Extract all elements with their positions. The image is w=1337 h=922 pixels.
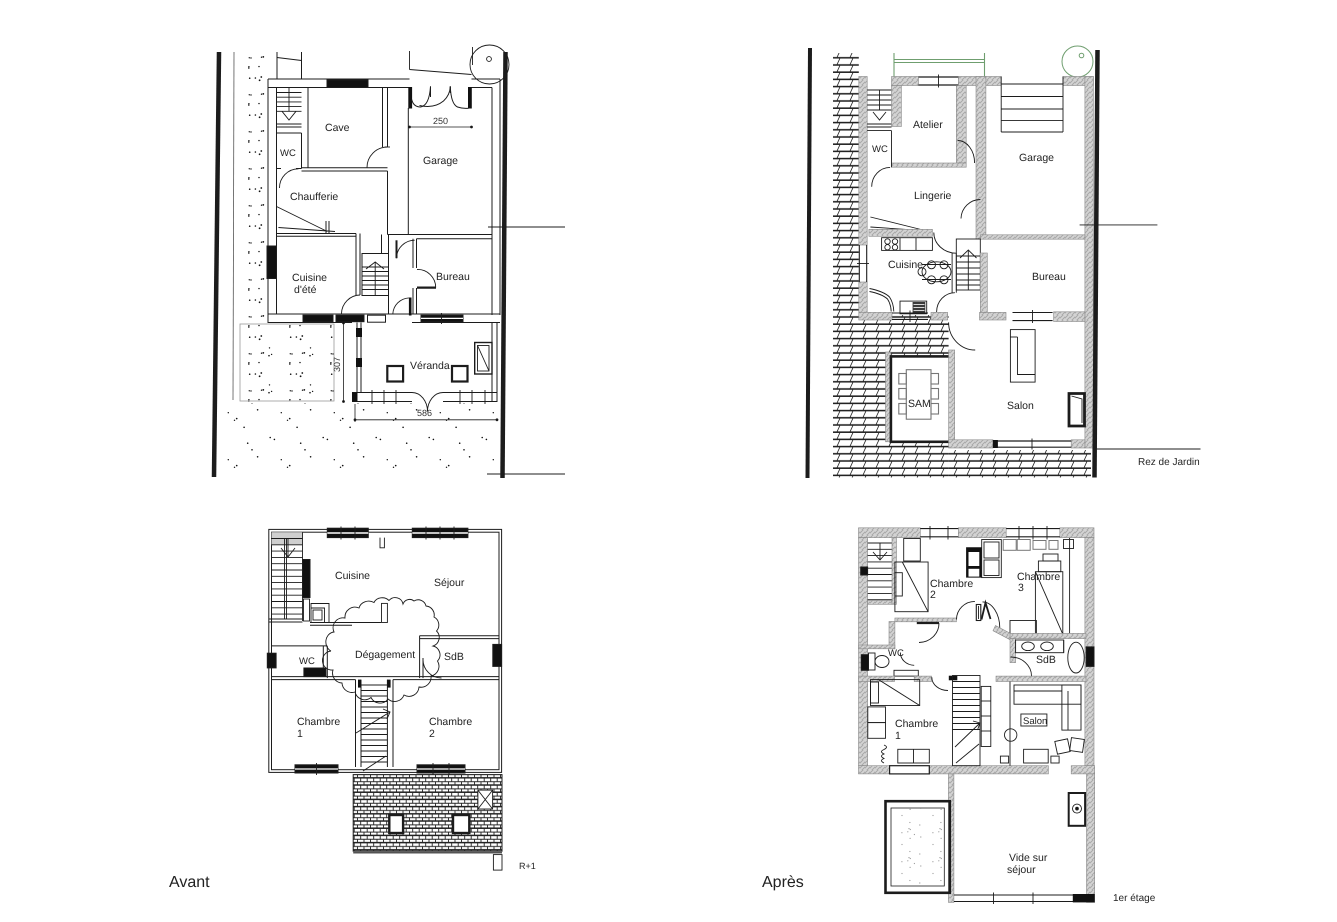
svg-text:d'été: d'été	[294, 284, 317, 296]
svg-text:2: 2	[930, 589, 936, 601]
svg-text:Garage: Garage	[423, 155, 458, 167]
svg-text:Atelier: Atelier	[913, 119, 943, 131]
svg-text:Cave: Cave	[325, 122, 350, 134]
svg-text:307: 307	[332, 357, 342, 372]
svg-text:1: 1	[895, 730, 901, 742]
svg-text:250: 250	[433, 116, 448, 126]
svg-text:1: 1	[297, 728, 303, 740]
svg-text:3: 3	[1018, 582, 1024, 594]
svg-text:WC: WC	[888, 648, 904, 659]
svg-text:Bureau: Bureau	[436, 271, 470, 283]
svg-text:SdB: SdB	[444, 651, 464, 663]
svg-text:WC: WC	[299, 656, 315, 667]
svg-text:WC: WC	[280, 148, 296, 159]
svg-text:WC: WC	[872, 144, 888, 155]
svg-text:Chaufferie: Chaufferie	[290, 191, 338, 203]
svg-text:séjour: séjour	[1007, 864, 1036, 876]
svg-text:Séjour: Séjour	[434, 577, 465, 589]
svg-text:SAM: SAM	[908, 398, 931, 410]
svg-text:Avant: Avant	[169, 874, 210, 891]
svg-text:Cuisine: Cuisine	[335, 570, 370, 582]
svg-text:Cuisine: Cuisine	[292, 272, 327, 284]
svg-text:Lingerie: Lingerie	[914, 190, 952, 202]
svg-text:R+1: R+1	[519, 861, 536, 871]
svg-text:1er étage: 1er étage	[1113, 893, 1156, 904]
svg-text:Salon: Salon	[1023, 716, 1047, 727]
svg-text:Vide sur: Vide sur	[1009, 852, 1048, 864]
svg-text:Bureau: Bureau	[1032, 271, 1066, 283]
svg-text:Chambre: Chambre	[930, 578, 973, 590]
svg-text:Après: Après	[762, 874, 804, 891]
svg-text:Cuisine: Cuisine	[888, 259, 923, 271]
svg-text:586: 586	[417, 408, 432, 418]
svg-text:Dégagement: Dégagement	[355, 649, 415, 661]
svg-text:Chambre: Chambre	[429, 716, 472, 728]
svg-text:Chambre: Chambre	[297, 716, 340, 728]
svg-text:Véranda: Véranda	[410, 360, 450, 372]
svg-text:Rez de Jardin: Rez de Jardin	[1138, 457, 1200, 468]
svg-text:SdB: SdB	[1036, 654, 1056, 666]
svg-text:Garage: Garage	[1019, 152, 1054, 164]
svg-text:Salon: Salon	[1007, 400, 1034, 412]
svg-text:Chambre: Chambre	[895, 718, 938, 730]
svg-text:2: 2	[429, 728, 435, 740]
